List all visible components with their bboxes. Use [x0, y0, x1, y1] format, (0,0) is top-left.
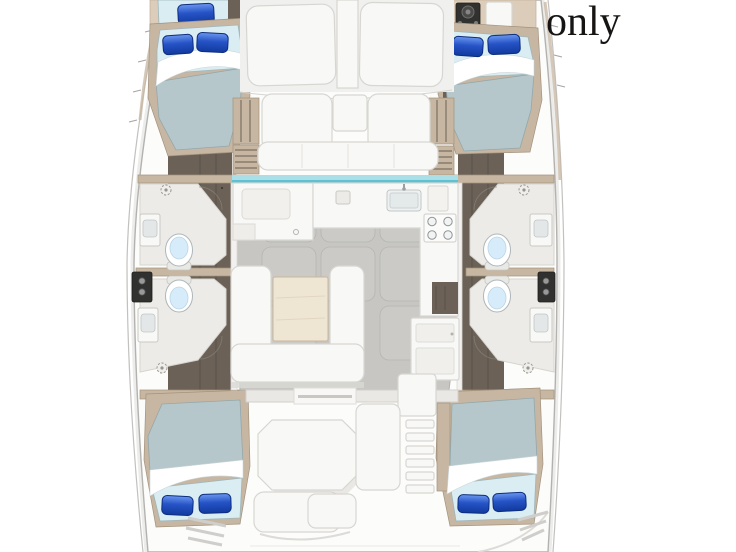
- door-track: [298, 395, 352, 398]
- salon-windshield: [232, 175, 458, 183]
- toilet-bowl: [170, 237, 188, 259]
- locker-body: [429, 98, 454, 144]
- sink-basin: [141, 314, 155, 332]
- sink-basin: [534, 314, 548, 332]
- step-bar: [406, 420, 434, 428]
- cutting-board: [428, 186, 448, 211]
- toilet: [166, 234, 193, 270]
- cockpit-module: [356, 404, 400, 490]
- sofa-shadow: [231, 382, 364, 388]
- floor-dot: [221, 187, 223, 189]
- step-bar: [406, 459, 434, 467]
- cockpit-module: [398, 374, 436, 416]
- faucet-base: [402, 187, 406, 191]
- sink-basin: [534, 220, 548, 237]
- cockpit-table: [258, 420, 356, 490]
- sun-lounger: [359, 2, 443, 86]
- steps-body: [233, 145, 259, 174]
- appliance-body: [538, 272, 555, 302]
- shower-drain-center: [160, 366, 163, 369]
- tick: [138, 60, 146, 62]
- galley-locker: [432, 282, 458, 314]
- port-deck-locker: [233, 98, 259, 144]
- burner: [428, 231, 436, 239]
- port-aft-cabin-bed: [144, 390, 250, 527]
- toilet-bowl: [488, 287, 506, 309]
- center-console: [337, 0, 358, 88]
- tick: [557, 85, 565, 87]
- burner: [444, 217, 452, 225]
- salon: [231, 183, 462, 404]
- bed-pillow: [488, 34, 521, 55]
- nav-cabinet: [411, 318, 459, 380]
- caption-text: only: [546, 0, 621, 45]
- shower-drain-center: [164, 188, 167, 191]
- sun-lounger: [246, 4, 336, 86]
- tick: [554, 55, 562, 57]
- appliance-dial: [139, 289, 145, 295]
- toilet-bowl: [170, 287, 188, 309]
- appliance-dial: [543, 289, 549, 295]
- bed-pillow: [493, 492, 527, 512]
- cabinet-module: [233, 224, 255, 240]
- stbd-aft-cabin-bed: [436, 388, 543, 526]
- gauge-dial-center: [466, 10, 471, 15]
- bed-pillow: [452, 36, 483, 57]
- appliance-dial: [139, 278, 145, 284]
- cabinet-top: [242, 189, 290, 219]
- stbd-fwd-bulkhead: [452, 175, 554, 183]
- appliance-dial: [543, 278, 549, 284]
- toilet-bowl: [488, 237, 506, 259]
- sink-basin: [143, 220, 157, 237]
- burner: [444, 231, 452, 239]
- forward-cockpit: [233, 0, 454, 175]
- bed-mattress: [446, 74, 534, 151]
- step-bar: [406, 472, 434, 480]
- toilet: [166, 276, 193, 312]
- lounge-table: [333, 95, 367, 131]
- bed-pillow: [162, 34, 193, 55]
- cabinet-knob: [451, 333, 454, 336]
- tick: [129, 120, 137, 122]
- step-bar: [406, 485, 434, 493]
- port-fwd-bulkhead: [138, 175, 236, 183]
- stbd-electrical-unit: [538, 272, 555, 302]
- bridgedeck: [231, 0, 462, 546]
- toilet: [484, 234, 511, 270]
- floorplan-page: only: [0, 0, 736, 552]
- burner: [428, 217, 436, 225]
- bed-mattress: [148, 400, 243, 472]
- sink-basin: [390, 193, 418, 208]
- stbd-deck-locker: [429, 98, 454, 144]
- step-bar: [406, 433, 434, 441]
- port-companionway-steps: [233, 145, 259, 174]
- salon-table: [273, 277, 328, 341]
- salon-dinette: [231, 266, 364, 388]
- galley-stove: [424, 214, 456, 242]
- cockpit-seat: [308, 494, 356, 528]
- locker-body: [233, 98, 259, 144]
- tick: [133, 90, 141, 92]
- counter-hatch: [336, 191, 350, 204]
- bed-pillow: [161, 495, 193, 516]
- appliance-body: [132, 272, 152, 302]
- toilet: [484, 276, 511, 312]
- bed-pillow: [196, 32, 228, 53]
- step-bar: [406, 446, 434, 454]
- shower-drain-center: [526, 366, 529, 369]
- bed-pillow: [199, 493, 232, 513]
- bed-mattress: [450, 398, 537, 466]
- catamaran-floorplan: only: [0, 0, 736, 552]
- bed-mattress: [156, 68, 243, 150]
- cabinet-drawer: [416, 348, 454, 374]
- cabinet-drawer: [416, 324, 454, 342]
- bed-pillow: [458, 494, 490, 513]
- port-electrical-unit: [132, 272, 152, 302]
- sofa-base: [231, 344, 364, 382]
- shower-drain-center: [522, 188, 525, 191]
